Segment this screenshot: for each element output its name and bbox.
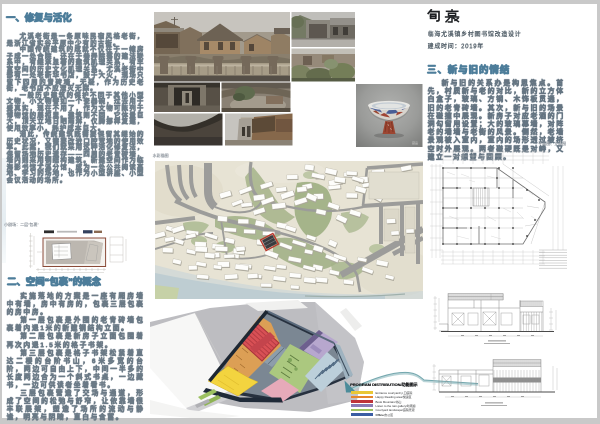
svg-text:藏品: 藏品 <box>412 140 418 145</box>
